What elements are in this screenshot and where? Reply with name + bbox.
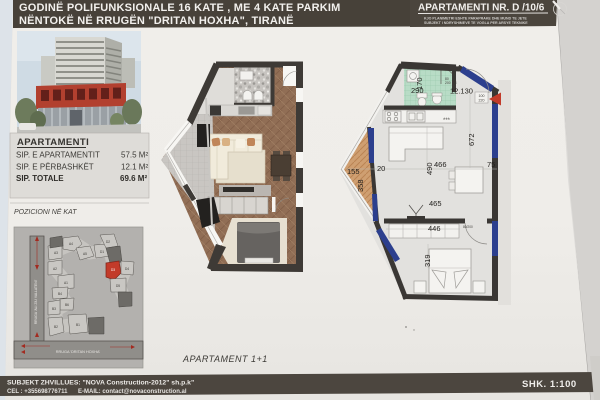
svg-text:B1: B1 (76, 323, 80, 327)
svg-text:75: 75 (487, 160, 495, 169)
svg-text:SUBJEKT ZHVILLUES: "NOVA Const: SUBJEKT ZHVILLUES: "NOVA Construction-20… (7, 380, 194, 387)
svg-text:D2: D2 (106, 240, 110, 244)
svg-text:672: 672 (467, 133, 476, 146)
svg-text:A3: A3 (54, 251, 58, 255)
svg-text:80/200: 80/200 (463, 225, 473, 229)
svg-text:D1: D1 (100, 250, 104, 254)
svg-text:APARTAMENTI NR. D /10/6: APARTAMENTI NR. D /10/6 (418, 3, 545, 14)
svg-text:155: 155 (347, 167, 360, 176)
svg-text:CEL : +355698776711: CEL : +355698776711 (7, 389, 68, 395)
svg-text:B4: B4 (58, 292, 62, 296)
svg-text:SUBJEKT I NDRYSHIMEVE TE VOGLA: SUBJEKT I NDRYSHIMEVE TE VOGLA PER ARSYE… (424, 21, 528, 25)
svg-text:D4: D4 (125, 267, 129, 271)
svg-text:D3: D3 (111, 268, 115, 272)
svg-text:A5: A5 (83, 252, 87, 256)
svg-text:A1: A1 (64, 281, 68, 285)
svg-text:319: 319 (423, 254, 432, 267)
svg-text:RRUGA 'DRITAN HOXHA': RRUGA 'DRITAN HOXHA' (56, 350, 101, 354)
svg-text:GODINË POLIFUNKSIONALE 16 KATE: GODINË POLIFUNKSIONALE 16 KATE , ME 4 KA… (19, 1, 341, 14)
svg-text:220: 220 (479, 99, 485, 103)
svg-text:APARTAMENT 1+1: APARTAMENT 1+1 (182, 354, 268, 364)
svg-text:SIP. TOTALE: SIP. TOTALE (16, 174, 64, 183)
svg-text:69.6 M²: 69.6 M² (120, 174, 147, 183)
svg-text:B3: B3 (52, 307, 56, 311)
svg-text:465: 465 (429, 199, 442, 208)
svg-text:***: *** (443, 118, 451, 124)
svg-text:SIP. E PËRBASHKËT: SIP. E PËRBASHKËT (16, 163, 94, 172)
svg-text:KJO PLANIMETRI ESHTE PARAPRAKE: KJO PLANIMETRI ESHTE PARAPRAKE DHE MUND … (424, 17, 527, 21)
svg-text:NËNTOKË NË RRUGËN "DRITAN HOXH: NËNTOKË NË RRUGËN "DRITAN HOXHA", TIRANË (19, 14, 294, 27)
svg-text:446: 446 (428, 224, 441, 233)
svg-text:POZICIONI NË KAT: POZICIONI NË KAT (14, 208, 77, 216)
svg-text:RRUGA 'ALI ZIU VALLATENI': RRUGA 'ALI ZIU VALLATENI' (34, 279, 38, 324)
svg-text:100: 100 (479, 94, 485, 98)
svg-text:SHK. 1:100: SHK. 1:100 (522, 379, 577, 390)
svg-text:E-MAIL: contact@novaconstructi: E-MAIL: contact@novaconstruction.al (78, 389, 187, 395)
svg-text:D5: D5 (116, 284, 120, 288)
svg-text:57.5 M²: 57.5 M² (121, 151, 148, 160)
svg-text:SIP. E APARTAMENTIT: SIP. E APARTAMENTIT (16, 151, 100, 160)
svg-text:490: 490 (425, 162, 434, 175)
svg-text:A2: A2 (53, 267, 57, 271)
svg-text:APARTAMENTI: APARTAMENTI (17, 137, 89, 148)
svg-text:20: 20 (377, 164, 385, 173)
svg-text:200: 200 (445, 81, 451, 85)
svg-text:170: 170 (415, 77, 424, 90)
svg-text:358: 358 (356, 179, 365, 192)
svg-text:A4: A4 (69, 242, 73, 246)
svg-text:B6: B6 (65, 303, 69, 307)
svg-text:12.130: 12.130 (450, 87, 473, 96)
svg-text:B2: B2 (54, 325, 58, 329)
svg-text:466: 466 (434, 160, 447, 169)
svg-text:12.1 M²: 12.1 M² (121, 163, 148, 172)
